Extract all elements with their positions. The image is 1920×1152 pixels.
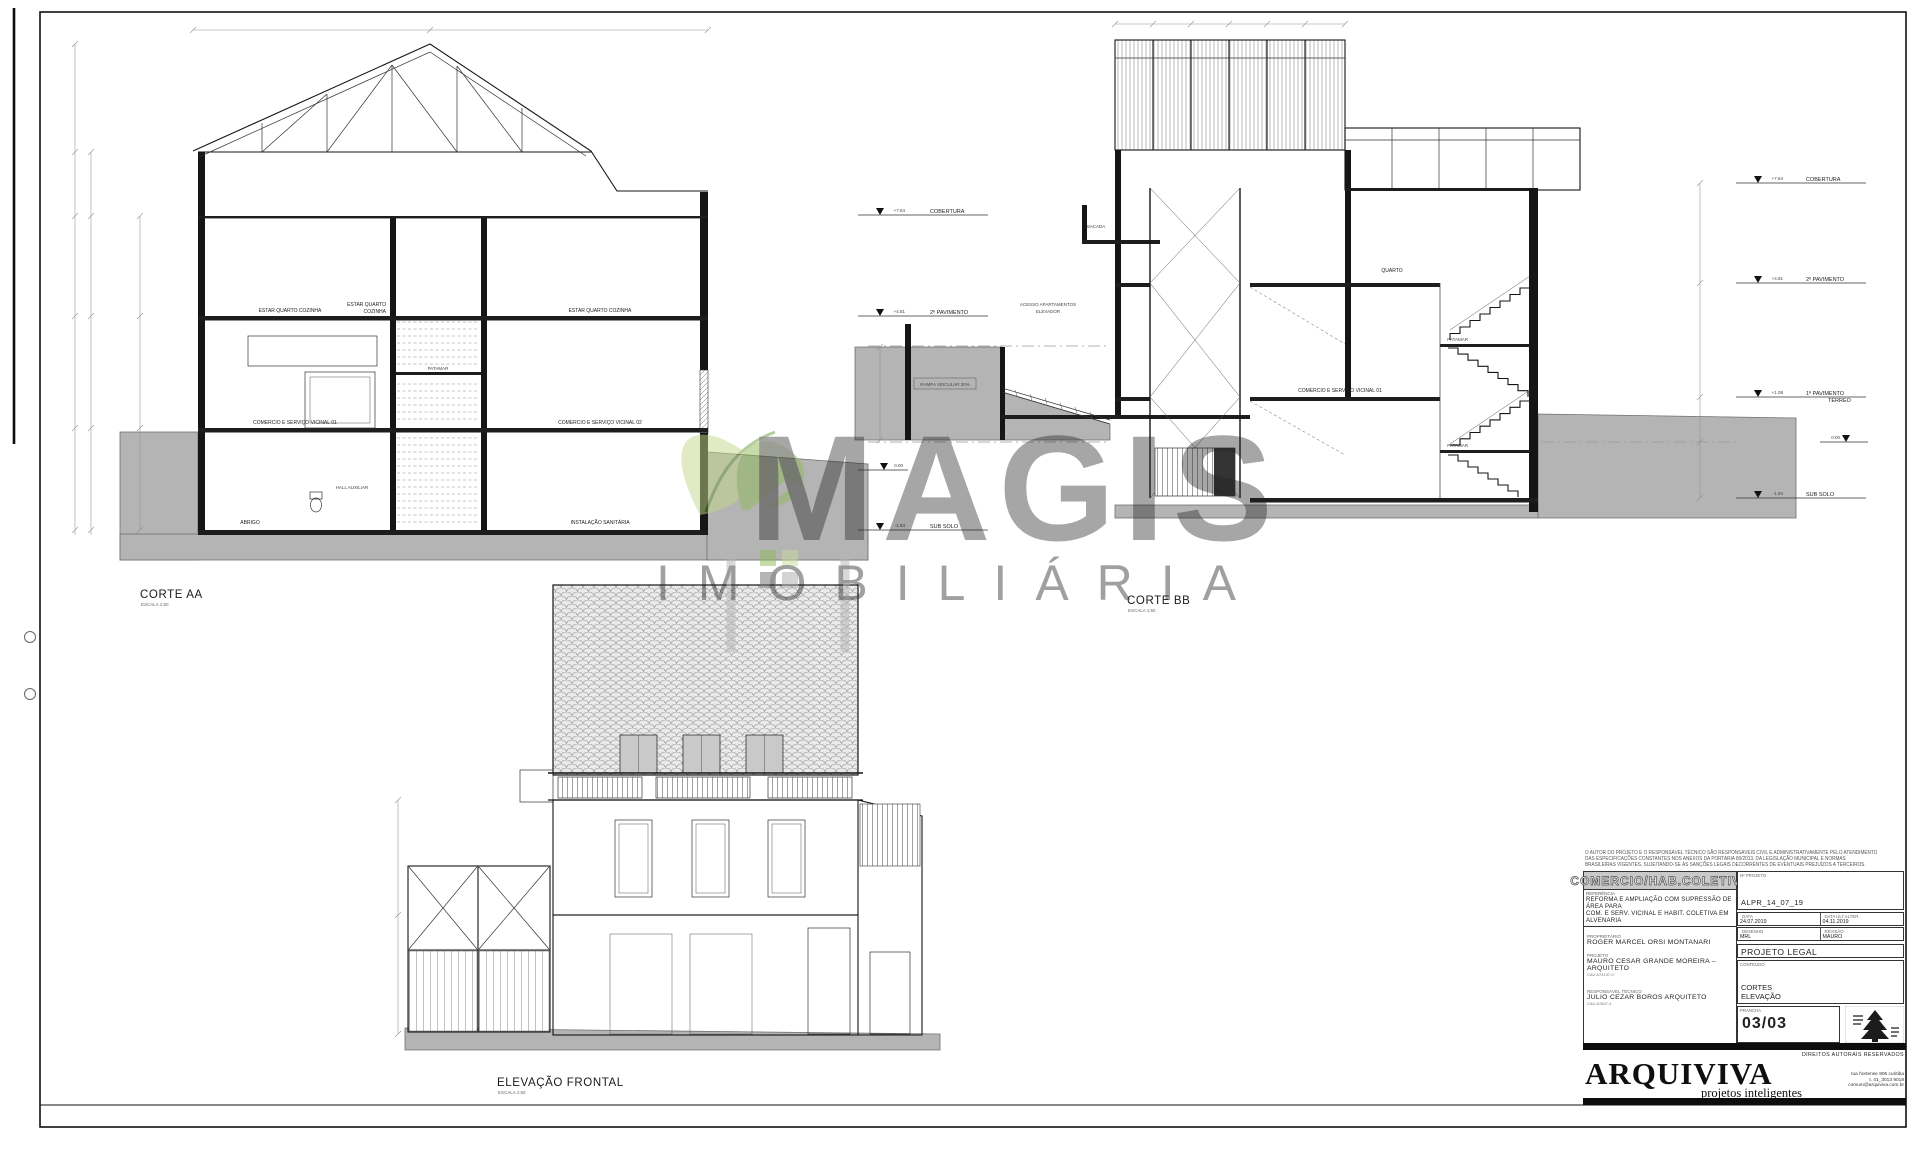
corte-bb-title: CORTE BB xyxy=(1127,595,1190,607)
room-label: COMERCIO E SERVIÇO VICINAL 02 xyxy=(558,420,642,426)
room-label: ABRIGO xyxy=(240,520,260,526)
left-fence xyxy=(408,866,550,1032)
prancha-box: PRANCHA 03/03 xyxy=(1737,1006,1840,1043)
balustrade-band xyxy=(548,773,863,800)
sheet-number: 03/03 xyxy=(1738,1013,1839,1033)
lower-roof xyxy=(1345,128,1580,190)
date-row: DATA24.07.2019 DATA ÚLT.ALTER.04.11.2019 xyxy=(1737,912,1904,926)
desenho-row: DESENHOMRL REVISÃOMAURO xyxy=(1737,927,1904,941)
watermark-brand: MAGIS xyxy=(749,404,1281,572)
contact-info: rua hortense 806 curitiba t. 41_3013 901… xyxy=(1848,1072,1904,1089)
corrugated-roof xyxy=(1115,40,1345,150)
divider-band xyxy=(1583,1043,1906,1050)
room-label: ELEVADOR xyxy=(1036,309,1061,314)
bottom-band xyxy=(1583,1098,1906,1105)
project-number: ALPR_14_07_19 xyxy=(1738,894,1806,907)
projeto-cau: CAU A74137-0 xyxy=(1584,972,1736,977)
punch-hole xyxy=(25,632,36,643)
staircase xyxy=(1250,276,1530,498)
room-label: COZINHA xyxy=(364,309,387,315)
svg-text:+4.81: +4.81 xyxy=(894,309,906,314)
projeto-value: MAURO CESAR GRANDE MOREIRA – ARQUITETO xyxy=(1584,958,1736,972)
proprietario-value: ROGER MARCEL ORSI MONTANARI xyxy=(1584,939,1736,946)
stair-shaft xyxy=(396,322,481,522)
project-number-box: Nº PROJETO ALPR_14_07_19 xyxy=(1737,871,1904,910)
ground-right xyxy=(1538,414,1796,518)
elevacao-scale: ESCALA 1:50 xyxy=(498,1090,526,1095)
room-label: ESTAR QUARTO COZINHA xyxy=(259,308,322,314)
corte-aa-scale: ESCALA 1:50 xyxy=(141,602,169,607)
svg-text:+7.64: +7.64 xyxy=(1772,176,1784,181)
svg-text:+1.08: +1.08 xyxy=(1772,390,1784,395)
side-return xyxy=(520,770,553,802)
room-label: ACESSO APARTAMENTOS xyxy=(1020,302,1076,307)
title-block-right: Nº PROJETO ALPR_14_07_19 DATA24.07.2019 … xyxy=(1737,871,1906,1043)
svg-text:+7.64: +7.64 xyxy=(894,208,906,213)
room-label: COMERCIO E SERVIÇO VICINAL 01 xyxy=(1298,388,1382,394)
fase-box: PROJETO LEGAL xyxy=(1737,944,1904,958)
arquiviva-block: ARQUIVIVA projetos inteligentes DIREITOS… xyxy=(1583,1050,1906,1098)
resp-cau: CAU A7847-4 xyxy=(1584,1001,1736,1006)
dimension-chains-elev xyxy=(395,797,401,1037)
elevacao-frontal-drawing xyxy=(395,585,940,1050)
svg-text:2º PAVIMENTO: 2º PAVIMENTO xyxy=(930,309,969,316)
elevacao-title: ELEVAÇÃO FRONTAL xyxy=(497,1076,624,1089)
resp-value: JULIO CEZAR BOROS ARQUITETO xyxy=(1584,994,1736,1001)
room-label: QUARTO xyxy=(1381,268,1402,274)
lower-floor xyxy=(553,915,858,1035)
disclaimer: O AUTOR DO PROJETO E O RESPONSÁVEL TÉCNI… xyxy=(1585,850,1889,869)
room-label: SACADA xyxy=(1087,224,1106,229)
attic-windows xyxy=(620,735,783,773)
svg-text:1º PAVIMENTO: 1º PAVIMENTO xyxy=(1806,390,1845,397)
middle-floor xyxy=(553,800,858,915)
room-label: INSTALAÇÃO SANITÁRIA xyxy=(570,519,630,526)
aea-logo xyxy=(1845,1006,1904,1043)
punch-hole xyxy=(25,689,36,700)
conteudo-box: CONTEÚDO CORTES ELEVAÇÃO xyxy=(1737,960,1904,1004)
svg-text:+4.81: +4.81 xyxy=(1772,276,1784,281)
svg-text:-1.94: -1.94 xyxy=(1773,491,1784,496)
title-block: O AUTOR DO PROJETO E O RESPONSÁVEL TÉCNI… xyxy=(1583,850,1906,1106)
room-label: PATAMAR xyxy=(1447,443,1469,448)
right-annex xyxy=(858,800,922,1035)
room-label: PATAMAR xyxy=(1447,337,1469,342)
svg-text:COBERTURA: COBERTURA xyxy=(1806,177,1841,183)
ramp-label: RAMPA VEICULAR 30% xyxy=(920,382,969,387)
mezzanine-counter xyxy=(248,336,377,366)
svg-text:SUB SOLO: SUB SOLO xyxy=(1806,492,1835,498)
room-label: HALL AUXILIAR xyxy=(336,485,369,490)
svg-text:COBERTURA: COBERTURA xyxy=(930,209,965,215)
referencia-text: REFORMA E AMPLIAÇÃO COM SUPRESSÃO DE ÁRE… xyxy=(1584,896,1736,924)
hatched-wall xyxy=(700,370,708,433)
ground-strip xyxy=(405,1028,940,1050)
rights-notice: DIREITOS AUTORAIS RESERVADOS xyxy=(1802,1052,1904,1058)
roof-truss xyxy=(193,44,708,191)
room-label: COMERCIO E SERVIÇO VICINAL 01 xyxy=(253,420,337,426)
room-label: ESTAR QUARTO COZINHA xyxy=(569,308,632,314)
room-label: PATAMAR xyxy=(428,366,450,371)
svg-text:2º PAVIMENTO: 2º PAVIMENTO xyxy=(1806,276,1845,283)
title-block-left: COMERCIO/HAB.COLETIVA REFERÊNCIA REFORMA… xyxy=(1583,871,1737,1045)
room-label: ESTAR QUARTO xyxy=(347,302,386,308)
corte-aa-title: CORTE AA xyxy=(140,589,203,601)
category-bar: COMERCIO/HAB.COLETIVA xyxy=(1584,872,1736,890)
toilet-fixture xyxy=(310,492,322,512)
svg-text:TÉRREO: TÉRREO xyxy=(1828,397,1852,404)
corte-bb-scale: ESCALA 1:50 xyxy=(1128,608,1156,613)
svg-text:0.00: 0.00 xyxy=(1831,435,1840,440)
drawing-sheet: ESTAR QUARTO COZINHA ESTAR QUARTO COZINH… xyxy=(0,0,1920,1152)
